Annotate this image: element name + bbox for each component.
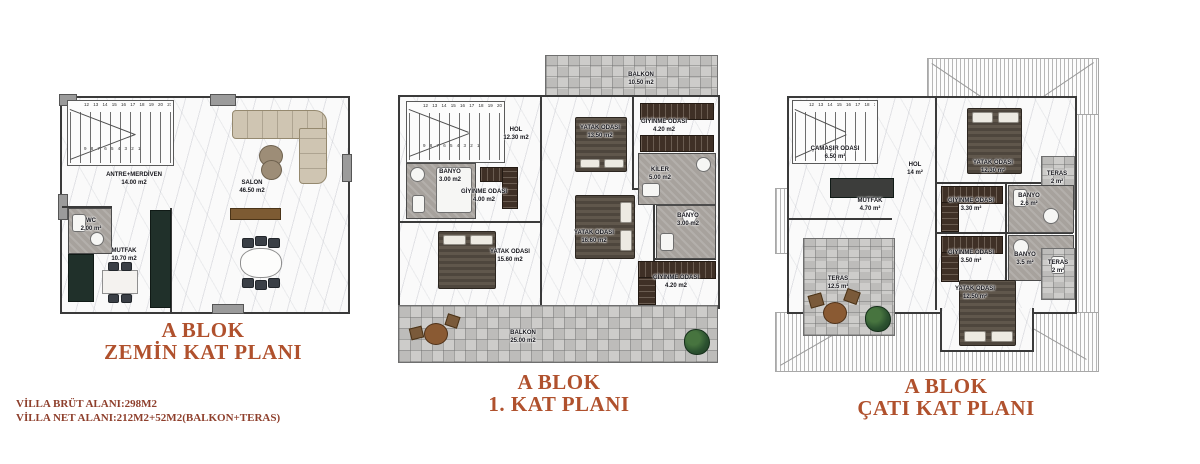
stair-numbers-top: 12 13 14 15 16 17 18 19 20 21 22 23 24: [84, 102, 171, 107]
wall-block: [210, 94, 236, 106]
room-label-yatak-ust: YATAK ODASI 12.30 m²: [973, 160, 1013, 176]
room-area: 14 m²: [907, 170, 923, 178]
kitchen-counter: [830, 178, 894, 198]
bed: [575, 195, 635, 259]
interior-wall: [398, 221, 540, 223]
room-area: 12.50 m²: [955, 294, 995, 302]
room-label-wc: WC 2.00 m²: [81, 218, 102, 234]
room-name: TERAS: [828, 276, 849, 284]
dining-chair: [242, 278, 254, 288]
room-label-banyo-alt: BANYO 3.5 m²: [1014, 252, 1036, 268]
dining-table: [240, 248, 282, 278]
pillow: [470, 235, 492, 245]
room-name: GİYİNME ODASI: [948, 198, 994, 206]
room-name: ANTRE+MERDİVEN: [106, 172, 162, 180]
room-name: TERAS: [1047, 171, 1067, 179]
pillow: [620, 230, 631, 251]
pillow: [443, 235, 465, 245]
room-area: 4.20 m2: [653, 283, 699, 291]
room-area: 3.50 m²: [948, 258, 994, 266]
staircase: 12 13 14 15 16 17 18 19 20 21 22 23 24 9…: [406, 101, 505, 163]
room-name: YATAK ODASI: [574, 230, 614, 238]
dining-chair: [268, 238, 280, 248]
room-area: 4.20 m2: [641, 127, 687, 135]
room-label-camasir: ÇAMAŞIR ODASI 6.50 m²: [811, 146, 860, 162]
sink-fixture: [410, 167, 425, 182]
room-name: MUTFAK: [858, 198, 883, 206]
room-name: SALON: [239, 180, 264, 188]
villa-area-info: VİLLA BRÜT ALANI:298M2 VİLLA NET ALANI:2…: [16, 398, 280, 426]
room-area: 25.00 m2: [510, 338, 536, 346]
room-name: GİYİNME ODASI: [948, 250, 994, 258]
room-name: MUTFAK: [111, 248, 136, 256]
pillow: [972, 112, 993, 123]
wardrobe: [640, 103, 714, 120]
room-area: 3.5 m²: [1014, 260, 1036, 268]
stair-treads: [409, 113, 502, 160]
kitchen-table: [102, 270, 138, 294]
room-name: WC: [81, 218, 102, 226]
bed: [438, 231, 496, 289]
interior-wall: [787, 218, 892, 220]
plant: [865, 306, 891, 332]
plan-kat-1: 12 13 14 15 16 17 18 19 20 21 22 23 24 9…: [398, 55, 720, 363]
sink-fixture: [90, 232, 104, 246]
room-name: GİYİNME ODASI: [461, 189, 507, 197]
toilet-fixture: [412, 195, 425, 213]
room-name: ÇAMAŞIR ODASI: [811, 146, 860, 154]
title-line1: A BLOK: [429, 372, 689, 394]
toilet-fixture: [660, 233, 674, 251]
plan-cati-kat: 12 13 14 15 16 17 18 19 20: [775, 58, 1097, 370]
room-area: 10.70 m2: [111, 256, 136, 264]
toilet-fixture: [642, 183, 660, 197]
room-label-teras-altsag: TERAS 2 m²: [1048, 260, 1068, 276]
room-name: YATAK ODASI: [973, 160, 1013, 168]
room-label-hol: HOL 12.30 m2: [503, 127, 528, 143]
floor-plans-sheet: 12 13 14 15 16 17 18 19 20 21 22 23 24 9…: [0, 0, 1200, 464]
room-name: BANYO: [1014, 252, 1036, 260]
room-area: 46.50 m2: [239, 188, 264, 196]
plan-zemin-kat: 12 13 14 15 16 17 18 19 20 21 22 23 24 9…: [60, 96, 350, 314]
title-line1: A BLOK: [73, 320, 333, 342]
room-area: 10.50 m2: [628, 80, 654, 88]
kitchen-counter: [150, 210, 171, 308]
room-label-banyo-sol: BANYO 3.00 m2: [439, 169, 461, 185]
room-area: 14.00 m2: [106, 180, 162, 188]
room-label-mutfak: MUTFAK 4.70 m²: [858, 198, 883, 214]
title-line2: ZEMİN KAT PLANI: [73, 342, 333, 364]
room-area: 13.50 m2: [580, 133, 620, 141]
room-name: GİYİNME ODASI: [641, 119, 687, 127]
room-area: 2.6 m²: [1018, 201, 1040, 209]
title-line2: 1. KAT PLANI: [429, 394, 689, 416]
room-area: 12.30 m2: [503, 135, 528, 143]
pillow: [998, 112, 1019, 123]
room-name: TERAS: [1048, 260, 1068, 268]
room-label-giyinme-ustsag: GİYİNME ODASI 4.20 m2: [641, 119, 687, 135]
room-name: HOL: [503, 127, 528, 135]
room-area: 3.00 m2: [677, 221, 699, 229]
title-zemin-kat: A BLOK ZEMİN KAT PLANI: [73, 320, 333, 363]
room-label-yatak-ust: YATAK ODASI 13.50 m2: [580, 125, 620, 141]
dining-chair: [255, 236, 267, 246]
room-area: 15.60 m2: [490, 257, 530, 265]
room-name: HOL: [907, 162, 923, 170]
villa-net-alani: VİLLA NET ALANI:212M2+52M2(BALKON+TERAS): [16, 412, 280, 426]
pillow: [580, 159, 600, 168]
pillow: [620, 202, 631, 223]
room-area: 3.00 m2: [439, 177, 461, 185]
pillow: [991, 331, 1013, 342]
room-label-yatak-sol: YATAK ODASI 15.60 m2: [490, 249, 530, 265]
dining-chair: [242, 238, 254, 248]
room-label-giyinme-ust: GİYİNME ODASI 3.30 m²: [948, 198, 994, 214]
plant: [684, 329, 710, 355]
kitchen-counter: [68, 254, 94, 302]
room-label-teras-ustsag: TERAS 2 m²: [1047, 171, 1067, 187]
villa-brut-alani: VİLLA BRÜT ALANI:298M2: [16, 398, 280, 412]
room-label-salon: SALON 46.50 m2: [239, 180, 264, 196]
sink-fixture: [1043, 208, 1059, 224]
room-label-yatak-orta: YATAK ODASI 16.60 m2: [574, 230, 614, 246]
room-label-balkon-alt: BALKON 25.00 m2: [510, 330, 536, 346]
room-area: 12.30 m²: [973, 168, 1013, 176]
dining-chair: [255, 280, 267, 290]
room-label-banyo-ust: BANYO 2.6 m²: [1018, 193, 1040, 209]
title-line1: A BLOK: [806, 376, 1086, 398]
wall-block: [342, 154, 352, 182]
room-area: 2.00 m²: [81, 226, 102, 234]
stair-numbers-top: 12 13 14 15 16 17 18 19 20: [809, 102, 875, 107]
interior-wall: [540, 95, 542, 305]
room-label-hol: HOL 14 m²: [907, 162, 923, 178]
room-name: GİYİNME ODASI: [653, 275, 699, 283]
room-area: 2 m²: [1047, 179, 1067, 187]
pillow: [604, 159, 624, 168]
room-label-giyinme-sol: GİYİNME ODASI 4.00 m2: [461, 189, 507, 205]
pouf: [261, 160, 282, 180]
room-name: YATAK ODASI: [955, 286, 995, 294]
sink-fixture: [696, 157, 711, 172]
interior-wall: [632, 95, 634, 190]
tv-console: [230, 208, 281, 220]
room-name: YATAK ODASI: [490, 249, 530, 257]
wardrobe: [640, 135, 714, 152]
pillow: [964, 331, 986, 342]
interior-wall: [935, 96, 937, 310]
room-name: BALKON: [510, 330, 536, 338]
room-area: 6.50 m²: [811, 154, 860, 162]
room-area: 2 m²: [1048, 268, 1068, 276]
room-name: BANYO: [1018, 193, 1040, 201]
room-area: 16.60 m2: [574, 238, 614, 246]
title-line2: ÇATI KAT PLANI: [806, 398, 1086, 420]
room-area: 4.00 m2: [461, 197, 507, 205]
chair: [121, 294, 132, 303]
room-name: KİLER: [649, 167, 671, 175]
room-label-mutfak: MUTFAK 10.70 m2: [111, 248, 136, 264]
teras-table: [823, 302, 847, 324]
sofa-vertical: [299, 128, 327, 184]
room-area: 5.00 m2: [649, 175, 671, 183]
room-label-yatak-alt: YATAK ODASI 12.50 m²: [955, 286, 995, 302]
room-label-giyinme-altsag: GİYİNME ODASI 4.20 m2: [653, 275, 699, 291]
room-name: BANYO: [677, 213, 699, 221]
room-label-banyo-sag: BANYO 3.00 m2: [677, 213, 699, 229]
room-label-teras-sol: TERAS 12.5 m²: [828, 276, 849, 292]
room-name: YATAK ODASI: [580, 125, 620, 133]
room-label-balkon-ust: BALKON 10.50 m2: [628, 72, 654, 88]
chair: [108, 294, 119, 303]
wall-block: [212, 304, 244, 314]
room-area: 4.70 m²: [858, 206, 883, 214]
room-label-antre: ANTRE+MERDİVEN 14.00 m2: [106, 172, 162, 188]
stair-treads: [70, 112, 171, 163]
stair-numbers-top: 12 13 14 15 16 17 18 19 20 21 22 23 24: [423, 103, 502, 108]
room-name: BALKON: [628, 72, 654, 80]
room-area: 3.30 m²: [948, 206, 994, 214]
balcony-table: [424, 323, 448, 345]
title-cati-kat: A BLOK ÇATI KAT PLANI: [806, 376, 1086, 419]
room-label-giyinme-alt: GİYİNME ODASI 3.50 m²: [948, 250, 994, 266]
room-label-kiler: KİLER 5.00 m2: [649, 167, 671, 183]
title-kat-1: A BLOK 1. KAT PLANI: [429, 372, 689, 415]
staircase: 12 13 14 15 16 17 18 19 20 21 22 23 24 9…: [67, 100, 174, 166]
room-name: BANYO: [439, 169, 461, 177]
dining-chair: [268, 278, 280, 288]
room-area: 12.5 m²: [828, 284, 849, 292]
